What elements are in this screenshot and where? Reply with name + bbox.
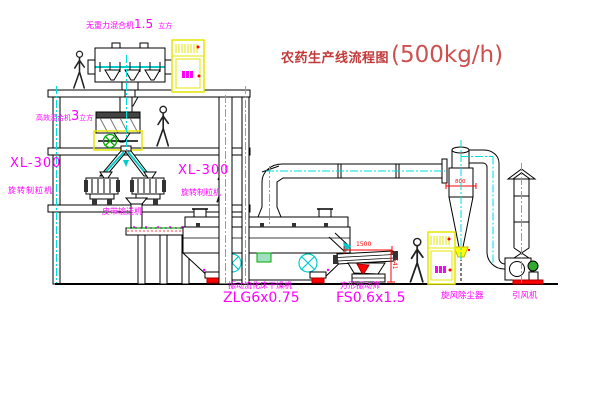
gravity-mixer-name: 无重力混合机 xyxy=(86,21,134,30)
title-capacity: (500kg/h) xyxy=(391,42,503,68)
granulator-left-name: 旋转制粒机 xyxy=(8,187,53,195)
person-mid-floor xyxy=(157,106,168,145)
belt-conveyor-label: 皮带输送机 xyxy=(102,208,142,216)
control-cabinet-right xyxy=(428,232,455,284)
granulator-left-model: XL-300 xyxy=(10,157,61,170)
high-eff-mixer-unit: 立方 xyxy=(79,114,93,122)
granulator-right-name: 旋转制粒机 xyxy=(181,189,221,197)
sieve-length-dimension: 1500 xyxy=(356,242,371,248)
granulator-right-model: XL-300 xyxy=(178,164,229,177)
fan-label: 引风机 xyxy=(512,292,538,301)
title-text: 农药生产线流程图 xyxy=(281,47,389,66)
high-efficiency-mixer xyxy=(94,97,142,150)
cyclone-label: 旋风除尘器 xyxy=(441,292,484,301)
cyclone-width-dimension: 800 xyxy=(455,180,466,186)
person-top-floor xyxy=(74,51,84,88)
induced-draft-fan xyxy=(505,258,543,284)
sieve-name-label: 方形振动筛 xyxy=(340,282,380,290)
control-cabinet-top xyxy=(172,40,204,92)
flow-diagram: 农药生产线流程图 (500kg/h) 无重力混合机1.5 立方 高效混合机3立方… xyxy=(0,0,600,403)
sieve-model-label: FS0.6x1.5 xyxy=(336,291,406,305)
exhaust-duct xyxy=(258,159,447,217)
page-title: 农药生产线流程图 (500kg/h) xyxy=(281,42,503,68)
fluid-bed-dryer xyxy=(183,209,350,283)
gravity-mixer-label: 无重力混合机1.5 立方 xyxy=(86,15,172,31)
dryer-name-label: 振动流化床干燥机 xyxy=(228,282,292,290)
high-eff-mixer-name: 高效混合机 xyxy=(36,114,71,122)
gravity-mixer-size: 1.5 xyxy=(134,17,153,31)
high-eff-mixer-label: 高效混合机3立方 xyxy=(36,107,93,123)
person-ground xyxy=(410,238,422,281)
rotary-granulator-left xyxy=(84,172,120,205)
gravity-mixer-unit: 立方 xyxy=(158,22,172,30)
dryer-model-label: ZLG6x0.75 xyxy=(223,291,300,305)
sieve-height-dimension: 541 xyxy=(391,258,397,269)
